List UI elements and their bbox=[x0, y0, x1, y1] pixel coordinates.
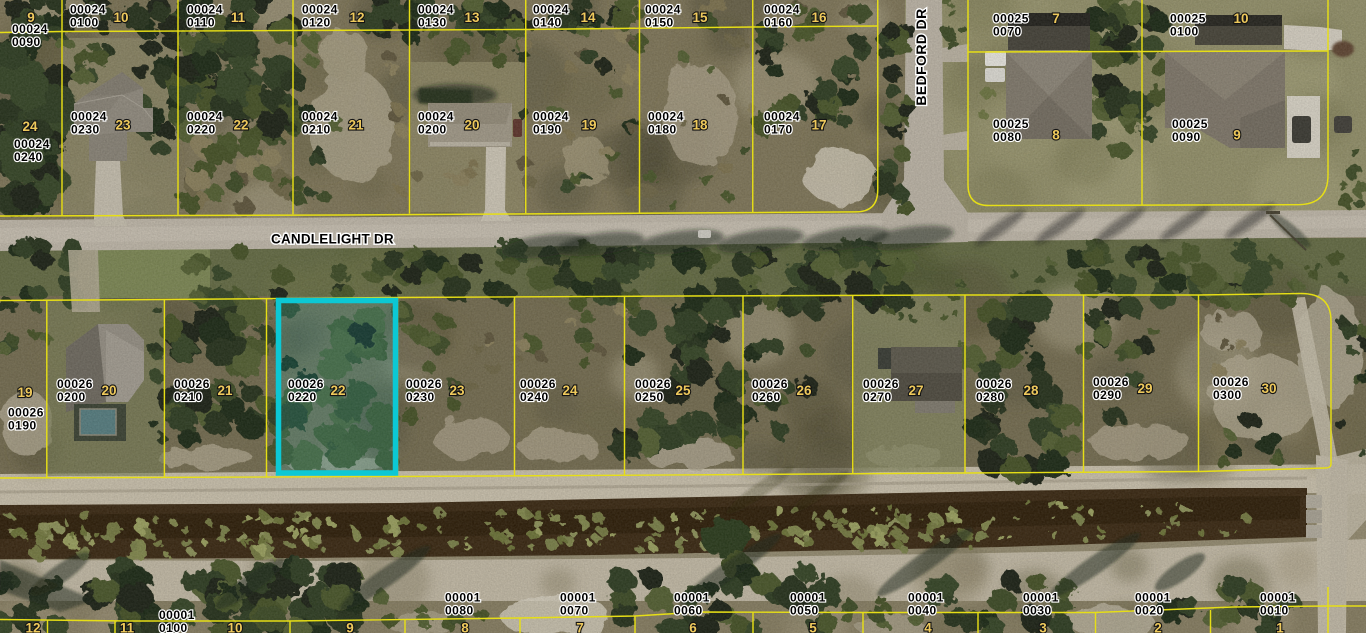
svg-text:22: 22 bbox=[233, 118, 248, 133]
svg-text:3: 3 bbox=[1039, 621, 1047, 633]
svg-text:11: 11 bbox=[120, 621, 135, 633]
svg-text:8: 8 bbox=[461, 621, 469, 633]
svg-text:8: 8 bbox=[1052, 128, 1060, 143]
svg-text:25: 25 bbox=[675, 383, 691, 398]
svg-text:23: 23 bbox=[115, 118, 131, 133]
svg-text:9: 9 bbox=[1233, 128, 1241, 143]
svg-text:6: 6 bbox=[689, 621, 697, 633]
svg-text:22: 22 bbox=[330, 383, 345, 398]
svg-text:10: 10 bbox=[1233, 11, 1248, 26]
svg-text:19: 19 bbox=[581, 118, 596, 133]
svg-text:12: 12 bbox=[349, 10, 364, 25]
svg-text:7: 7 bbox=[576, 621, 584, 633]
svg-text:21: 21 bbox=[348, 118, 364, 133]
svg-text:1: 1 bbox=[1276, 621, 1284, 633]
svg-text:5: 5 bbox=[809, 621, 817, 633]
svg-text:19: 19 bbox=[17, 385, 32, 400]
svg-text:21: 21 bbox=[217, 383, 233, 398]
svg-text:24: 24 bbox=[22, 119, 38, 134]
svg-text:9: 9 bbox=[346, 621, 354, 633]
svg-text:24: 24 bbox=[562, 383, 578, 398]
svg-text:10: 10 bbox=[227, 621, 242, 633]
svg-text:16: 16 bbox=[811, 10, 827, 25]
svg-text:29: 29 bbox=[1137, 381, 1152, 396]
svg-text:2: 2 bbox=[1154, 621, 1162, 633]
svg-text:27: 27 bbox=[908, 383, 923, 398]
svg-text:BEDFORD DR: BEDFORD DR bbox=[913, 8, 929, 105]
svg-text:12: 12 bbox=[25, 621, 40, 633]
svg-text:26: 26 bbox=[796, 383, 812, 398]
svg-text:11: 11 bbox=[231, 10, 246, 25]
svg-text:18: 18 bbox=[692, 118, 708, 133]
svg-text:20: 20 bbox=[464, 118, 479, 133]
svg-text:14: 14 bbox=[580, 10, 596, 25]
svg-text:30: 30 bbox=[1261, 381, 1276, 396]
svg-text:7: 7 bbox=[1052, 11, 1060, 26]
svg-text:4: 4 bbox=[924, 621, 932, 633]
svg-text:28: 28 bbox=[1023, 383, 1039, 398]
svg-text:10: 10 bbox=[113, 10, 128, 25]
svg-text:20: 20 bbox=[101, 383, 116, 398]
svg-text:23: 23 bbox=[449, 383, 465, 398]
svg-text:13: 13 bbox=[464, 10, 480, 25]
svg-text:CANDLELIGHT DR: CANDLELIGHT DR bbox=[271, 232, 394, 247]
svg-text:15: 15 bbox=[692, 10, 708, 25]
svg-text:17: 17 bbox=[811, 118, 826, 133]
